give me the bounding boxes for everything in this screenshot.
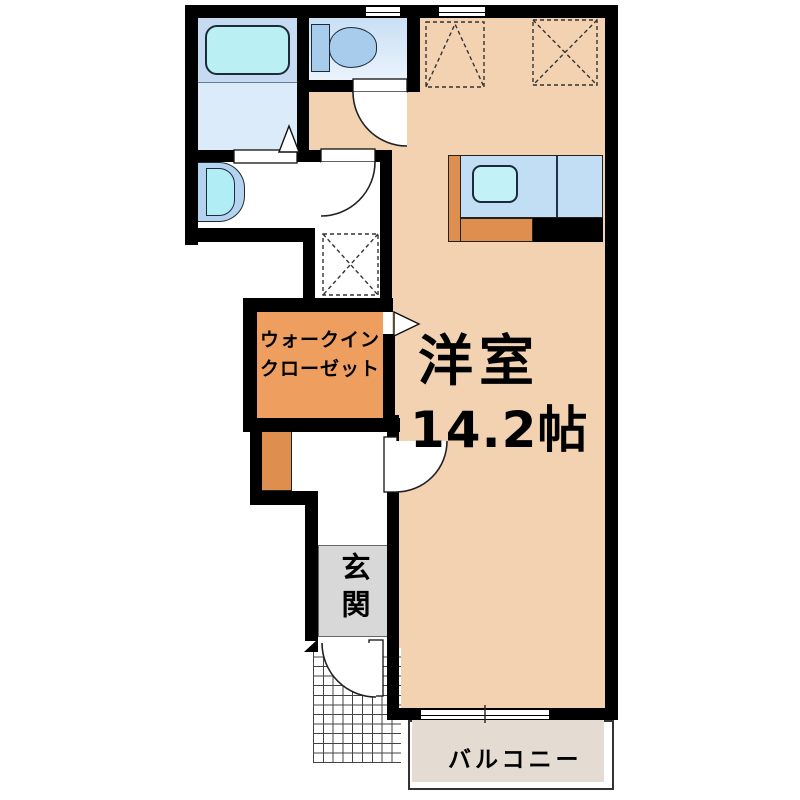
wall-washroom-bottom [185, 228, 315, 242]
main-room-label: 洋室 [418, 316, 540, 396]
kitchen-counter-wall-block [533, 218, 603, 242]
wall-right [605, 5, 618, 720]
wall-closet-top [245, 298, 393, 312]
wall-corridor-right [380, 150, 392, 312]
sliding-window-balcony [420, 709, 550, 720]
washing-machine-space-marker [323, 234, 378, 295]
toilet-bowl [329, 27, 377, 68]
washing-machine-space-lines [323, 234, 378, 295]
wall-bathroom-bottom [185, 150, 234, 162]
wall-toilet-right [407, 5, 420, 92]
main-room-area-top [420, 18, 605, 90]
washroom-door-arc [321, 162, 375, 216]
washroom-door-swing [321, 162, 375, 216]
bathroom-floor [198, 83, 300, 150]
wall-closet-bottom [243, 418, 400, 432]
floor-plan: 洋室 14.2帖 ウォークイン クローゼット 玄関 バルコニー [0, 0, 800, 800]
toilet-tank [311, 24, 330, 72]
wall-left [185, 5, 198, 245]
shoe-cabinet [260, 430, 292, 491]
walk-in-closet-label-line2: クローゼット [250, 355, 390, 384]
walk-in-closet-label-line1: ウォークイン [250, 326, 390, 355]
bathtub [205, 25, 290, 75]
wall-bathroom-right [297, 5, 309, 152]
washbasin-bowl [206, 168, 235, 216]
main-room-size: 14.2帖 [410, 390, 588, 462]
balcony-label: バルコニー [448, 740, 583, 774]
window-toilet [365, 6, 401, 17]
wall-entrance-left [305, 491, 318, 641]
wall-washroom-top-left [297, 150, 323, 162]
walk-in-closet-label: ウォークイン クローゼット [250, 326, 390, 385]
wall-top [185, 5, 618, 18]
wall-toilet-bottom [297, 80, 355, 92]
kitchen-cabinet [460, 218, 533, 242]
counter-divider [556, 156, 558, 217]
window-main-room [438, 6, 486, 17]
bathroom-doorway [234, 150, 297, 163]
entrance-label: 玄関 [333, 552, 375, 626]
main-room-alcove [308, 90, 605, 152]
wall-main-room-left [387, 415, 399, 710]
kitchen-sink [472, 165, 518, 203]
